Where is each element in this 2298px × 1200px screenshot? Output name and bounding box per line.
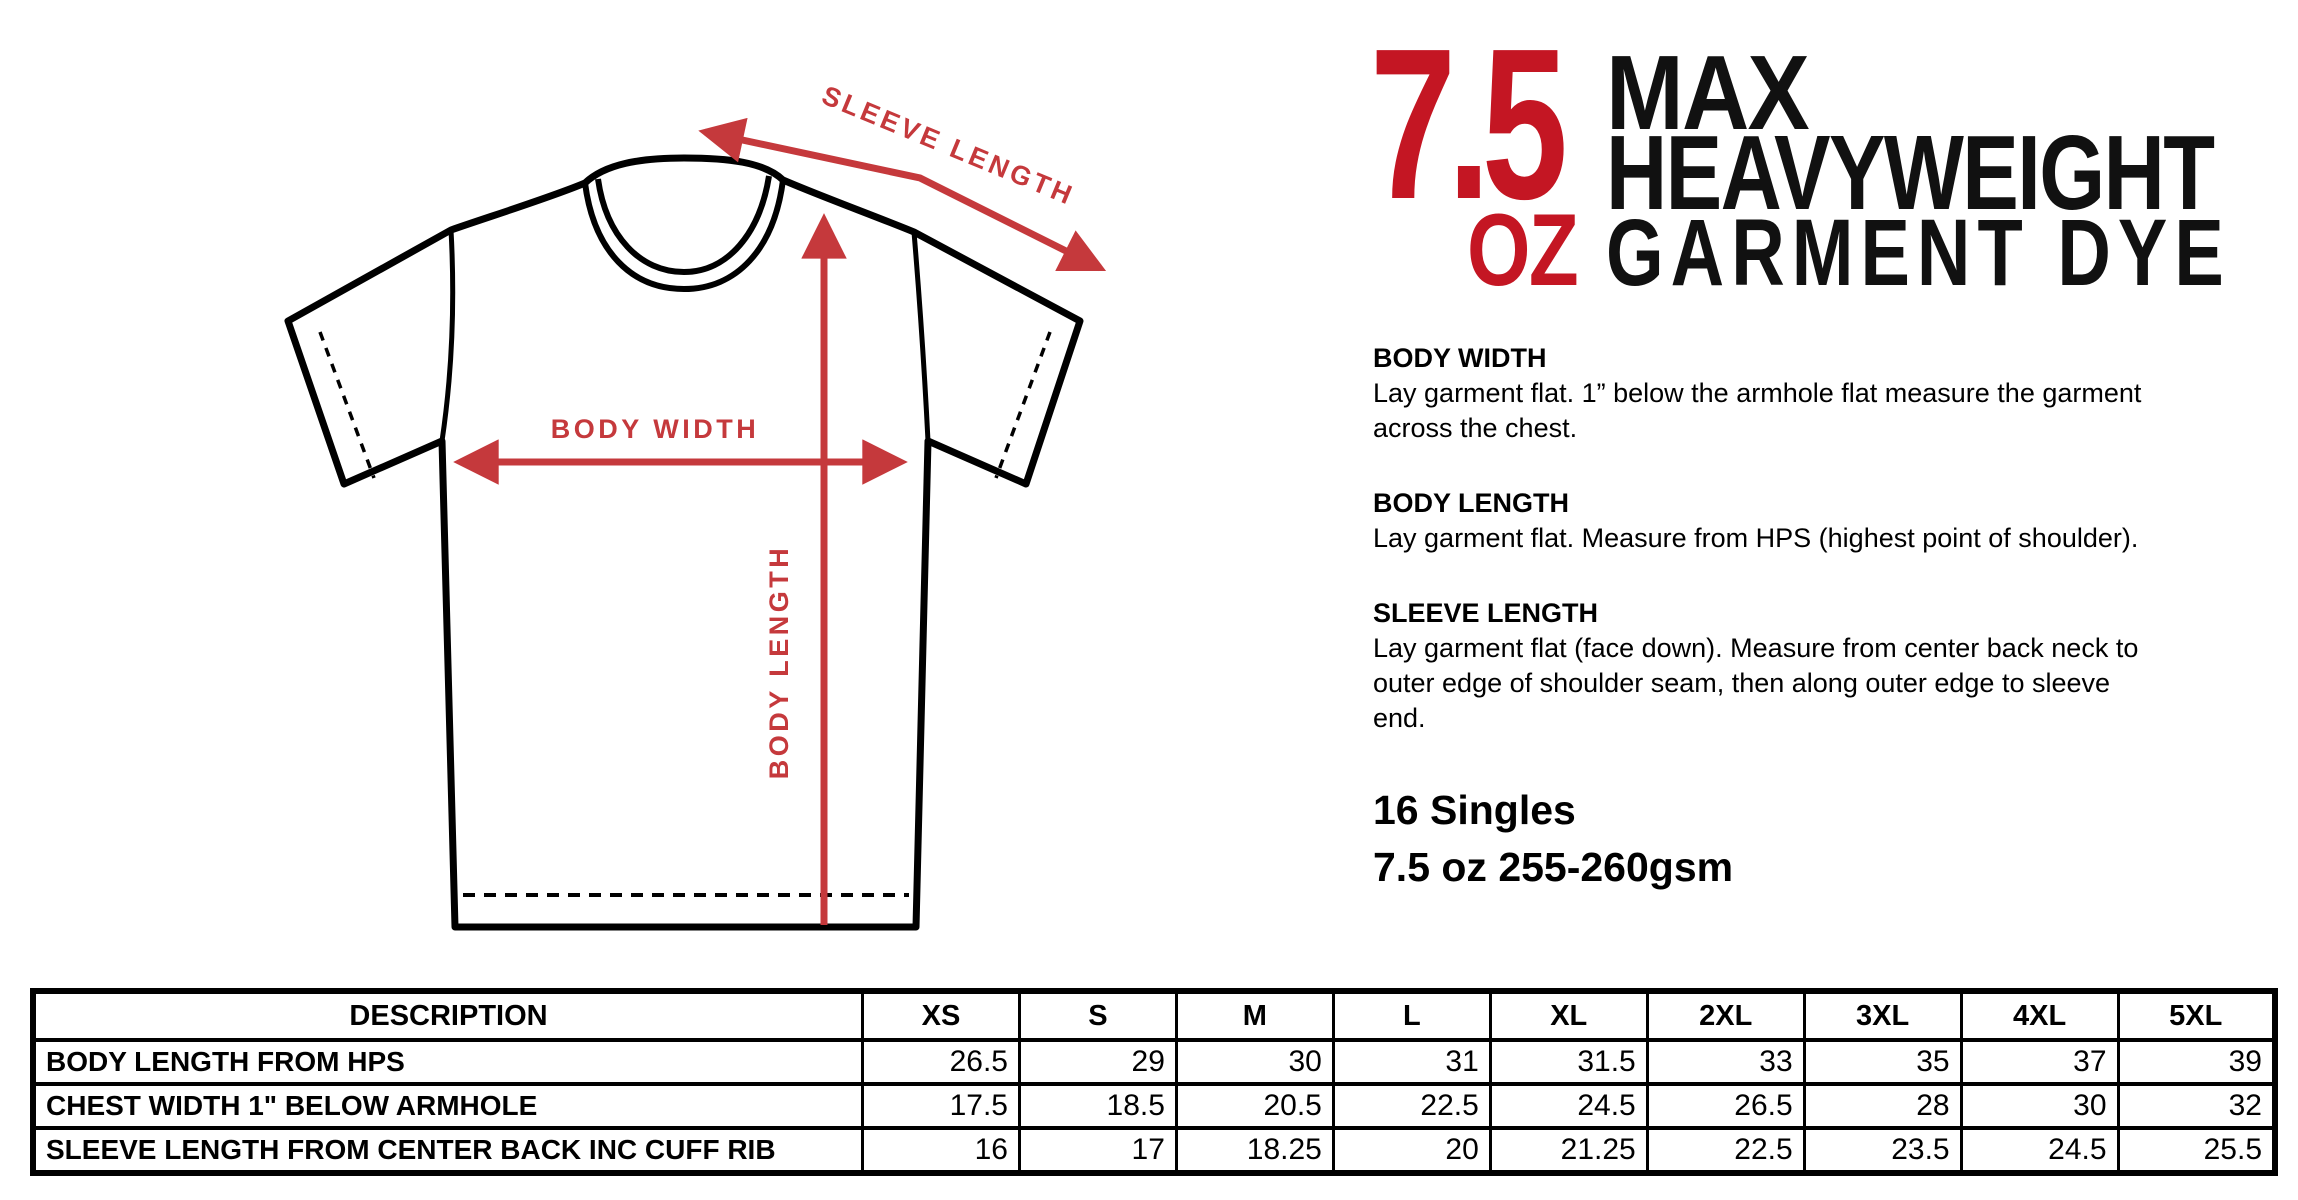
cell-value: 29 — [1019, 1040, 1176, 1084]
cell-value: 20.5 — [1176, 1084, 1333, 1128]
body-width-heading: BODY WIDTH — [1373, 341, 2153, 376]
cell-value: 25.5 — [2118, 1128, 2275, 1173]
cell-value: 32 — [2118, 1084, 2275, 1128]
cell-value: 18.5 — [1019, 1084, 1176, 1128]
cell-value: 35 — [1804, 1040, 1961, 1084]
cell-value: 39 — [2118, 1040, 2275, 1084]
col-header-4xl: 4XL — [1961, 991, 2118, 1040]
cell-value: 16 — [863, 1128, 1020, 1173]
tshirt-diagram: BODY LENGTH BODY WIDTH SLEEVE LENGTH — [260, 70, 1120, 940]
cell-value: 22.5 — [1333, 1084, 1490, 1128]
table-row-chest-width: CHEST WIDTH 1" BELOW ARMHOLE 17.5 18.5 2… — [33, 1084, 2275, 1128]
sleeve-length-text: Lay garment flat (face down). Measure fr… — [1373, 631, 2153, 736]
row-label: CHEST WIDTH 1" BELOW ARMHOLE — [33, 1084, 863, 1128]
tshirt-diagram-svg: BODY LENGTH BODY WIDTH SLEEVE LENGTH — [260, 70, 1120, 940]
col-header-m: M — [1176, 991, 1333, 1040]
fabric-specs: 16 Singles 7.5 oz 255-260gsm — [1373, 782, 2153, 896]
size-spec-sheet: BODY LENGTH BODY WIDTH SLEEVE LENGTH 7.5… — [0, 0, 2298, 1200]
cell-value: 31 — [1333, 1040, 1490, 1084]
col-header-3xl: 3XL — [1804, 991, 1961, 1040]
sleeve-length-heading: SLEEVE LENGTH — [1373, 596, 2153, 631]
size-table-header-row: DESCRIPTION XS S M L XL 2XL 3XL 4XL 5XL — [33, 991, 2275, 1040]
col-header-2xl: 2XL — [1647, 991, 1804, 1040]
cell-value: 33 — [1647, 1040, 1804, 1084]
cell-value: 31.5 — [1490, 1040, 1647, 1084]
cell-value: 17.5 — [863, 1084, 1020, 1128]
cell-value: 24.5 — [1490, 1084, 1647, 1128]
cell-value: 26.5 — [863, 1040, 1020, 1084]
cell-value: 20 — [1333, 1128, 1490, 1173]
cell-value: 37 — [1961, 1040, 2118, 1084]
col-header-description: DESCRIPTION — [33, 991, 863, 1040]
table-row-body-length: BODY LENGTH FROM HPS 26.5 29 30 31 31.5 … — [33, 1040, 2275, 1084]
body-length-label: BODY LENGTH — [764, 545, 794, 780]
title-weight-unit: OZ — [1467, 199, 1577, 301]
row-label: BODY LENGTH FROM HPS — [33, 1040, 863, 1084]
cell-value: 26.5 — [1647, 1084, 1804, 1128]
cell-value: 21.25 — [1490, 1128, 1647, 1173]
measurement-instructions: BODY WIDTH Lay garment flat. 1” below th… — [1373, 341, 2153, 896]
col-header-xs: XS — [863, 991, 1020, 1040]
table-row-sleeve-length: SLEEVE LENGTH FROM CENTER BACK INC CUFF … — [33, 1128, 2275, 1173]
col-header-5xl: 5XL — [2118, 991, 2275, 1040]
cell-value: 28 — [1804, 1084, 1961, 1128]
body-width-text: Lay garment flat. 1” below the armhole f… — [1373, 376, 2153, 446]
title-line-garment-dye: GARMENT DYE — [1606, 206, 2231, 301]
cell-value: 24.5 — [1961, 1128, 2118, 1173]
row-label: SLEEVE LENGTH FROM CENTER BACK INC CUFF … — [33, 1128, 863, 1173]
cell-value: 22.5 — [1647, 1128, 1804, 1173]
cell-value: 18.25 — [1176, 1128, 1333, 1173]
cell-value: 17 — [1019, 1128, 1176, 1173]
col-header-l: L — [1333, 991, 1490, 1040]
body-length-text: Lay garment flat. Measure from HPS (high… — [1373, 521, 2153, 556]
col-header-xl: XL — [1490, 991, 1647, 1040]
fabric-spec-weight: 7.5 oz 255-260gsm — [1373, 839, 2153, 896]
body-length-heading: BODY LENGTH — [1373, 486, 2153, 521]
size-table: DESCRIPTION XS S M L XL 2XL 3XL 4XL 5XL … — [30, 988, 2278, 1176]
body-width-label: BODY WIDTH — [551, 414, 760, 444]
col-header-s: S — [1019, 991, 1176, 1040]
cell-value: 23.5 — [1804, 1128, 1961, 1173]
cell-value: 30 — [1961, 1084, 2118, 1128]
cell-value: 30 — [1176, 1040, 1333, 1084]
fabric-spec-singles: 16 Singles — [1373, 782, 2153, 839]
